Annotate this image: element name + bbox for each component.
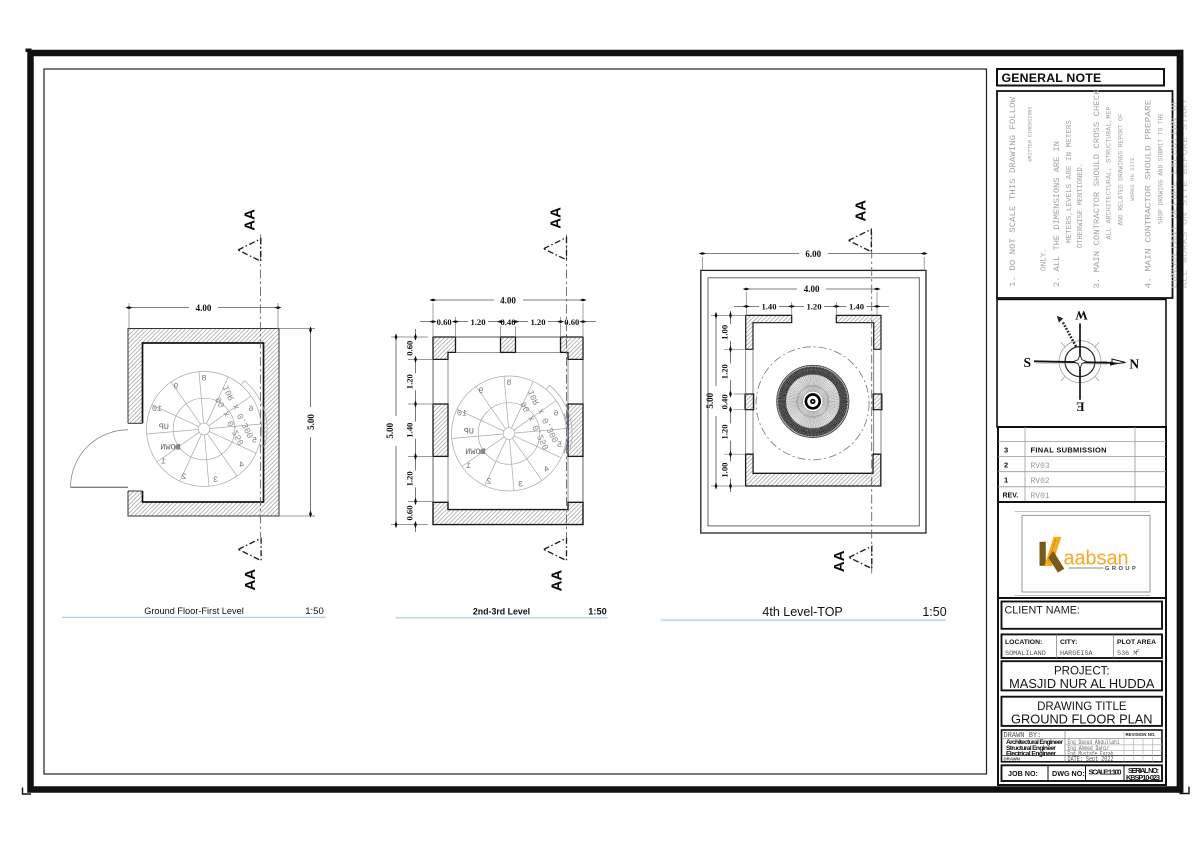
svg-text:W: W (1075, 308, 1088, 322)
svg-text:1:50: 1:50 (305, 606, 324, 617)
svg-text:0.60: 0.60 (404, 341, 414, 356)
svg-text:CITY:: CITY: (1060, 639, 1077, 646)
svg-text:KBSP10-023: KBSP10-023 (1126, 773, 1160, 782)
svg-text:1: 1 (1004, 476, 1008, 485)
svg-text:N: N (1129, 357, 1139, 372)
svg-text:0.60: 0.60 (437, 317, 452, 327)
svg-text:1.40: 1.40 (761, 301, 776, 311)
svg-text:5.00: 5.00 (385, 422, 395, 438)
svg-text:AA: AA (852, 200, 869, 222)
svg-text:1.20: 1.20 (470, 317, 485, 327)
svg-text:RV01: RV01 (1031, 492, 1050, 501)
svg-text:3. MAIN CONTRACTOR SHOULD CRO: 3. MAIN CONTRACTOR SHOULD CROSS CHECK (1093, 89, 1102, 288)
svg-text:HARGEISA: HARGEISA (1060, 650, 1094, 658)
svg-text:Ground Floor-First Level: Ground Floor-First Level (144, 606, 244, 616)
svg-text:1.20: 1.20 (404, 471, 414, 486)
svg-text:1.20: 1.20 (719, 424, 729, 439)
svg-text:1:50: 1:50 (588, 607, 606, 617)
svg-text:4. MAIN CONTRACTOR SHOULD PRE: 4. MAIN CONTRACTOR SHOULD PREPARE (1144, 99, 1153, 288)
svg-text:SOMALILAND: SOMALILAND (1005, 650, 1046, 658)
svg-text:RV02: RV02 (1031, 477, 1050, 486)
svg-text:2: 2 (1004, 461, 1008, 470)
svg-text:6.00: 6.00 (805, 249, 821, 259)
svg-text:1.20: 1.20 (806, 301, 821, 311)
svg-text:REV.: REV. (1003, 493, 1019, 500)
svg-text:RV03: RV03 (1031, 462, 1050, 471)
svg-text:AA: AA (549, 570, 566, 592)
svg-text:536 M: 536 M (1117, 650, 1137, 658)
svg-text:PLOT AREA: PLOT AREA (1117, 639, 1156, 646)
svg-text:1.00: 1.00 (719, 463, 729, 478)
svg-text:1.40: 1.40 (404, 423, 414, 438)
svg-text:GROUP: GROUP (1105, 566, 1138, 572)
svg-text:3: 3 (1004, 446, 1008, 455)
svg-text:OTHERWISE MENTIONED.: OTHERWISE MENTIONED. (1077, 163, 1085, 248)
svg-text:AA: AA (242, 209, 259, 231)
svg-text:4th Level-TOP: 4th Level-TOP (762, 605, 842, 619)
svg-text:GROUND FLOOR PLAN: GROUND FLOOR PLAN (1011, 711, 1153, 726)
svg-text:AA: AA (831, 550, 848, 572)
svg-text:WRITTEN DIMENSIONS: WRITTEN DIMENSIONS (1027, 107, 1033, 162)
svg-text:E: E (1076, 400, 1084, 414)
svg-text:1.20: 1.20 (530, 317, 545, 327)
svg-text:1.40: 1.40 (849, 301, 864, 311)
svg-text:FINAL SUBMISSION: FINAL SUBMISSION (1031, 446, 1107, 455)
svg-text:4.00: 4.00 (500, 295, 516, 305)
svg-text:SCALE:1:100: SCALE:1:100 (1089, 767, 1122, 776)
svg-text:2nd-3rd Level: 2nd-3rd Level (473, 607, 530, 617)
svg-text:2. ALL THE DIMENSIONS ARE IN: 2. ALL THE DIMENSIONS ARE IN (1053, 141, 1062, 287)
svg-text:1.00: 1.00 (719, 325, 729, 340)
svg-text:CLIENT NAME:: CLIENT NAME: (1005, 605, 1080, 617)
svg-text:AA: AA (547, 207, 564, 229)
svg-text:5.00: 5.00 (306, 414, 316, 430)
svg-text:METERS,LEVELS ARE IN METERS: METERS,LEVELS ARE IN METERS (1066, 120, 1074, 243)
svg-text:WORKS ON SITE.: WORKS ON SITE. (1129, 154, 1136, 201)
svg-text:0.40: 0.40 (719, 394, 729, 409)
svg-text:REVISION NO.: REVISION NO. (1126, 732, 1156, 737)
svg-text:1.20: 1.20 (719, 364, 729, 379)
svg-text:MASJID NUR AL HUDDA: MASJID NUR AL HUDDA (1009, 676, 1155, 691)
svg-text:DATE: Sept 2022: DATE: Sept 2022 (1068, 756, 1114, 764)
svg-text:2: 2 (1137, 648, 1140, 654)
svg-text:5.00: 5.00 (705, 392, 715, 408)
svg-text:AA: AA (242, 569, 259, 591)
svg-text:0.60: 0.60 (404, 505, 414, 520)
svg-text:LOCATION:: LOCATION: (1005, 639, 1042, 646)
svg-text:JOB NO:: JOB NO: (1008, 769, 1038, 778)
svg-text:DRAWN: DRAWN (1004, 757, 1021, 762)
svg-text:GENERAL NOTE: GENERAL NOTE (1002, 71, 1102, 85)
svg-text:AND RELATED DRAWINGS REPORT OF: AND RELATED DRAWINGS REPORT OF (1118, 113, 1125, 225)
svg-text:1.20: 1.20 (404, 374, 414, 389)
svg-text:1. DO NOT SCALE THIS DRAWING: 1. DO NOT SCALE THIS DRAWING FOLLOW (1009, 97, 1018, 287)
svg-text:SHOP DRAWING AND SUBMIT TO THE: SHOP DRAWING AND SUBMIT TO THE (1157, 113, 1164, 224)
svg-text:S: S (1023, 355, 1031, 370)
svg-text:1:50: 1:50 (922, 605, 946, 619)
svg-text:ONLY.: ONLY. (1041, 248, 1049, 271)
svg-text:DWG NO:: DWG NO: (1052, 769, 1085, 778)
svg-text:4.00: 4.00 (196, 303, 212, 313)
svg-text:4.00: 4.00 (804, 284, 820, 294)
svg-text:ALL ARCHITECTURAL, STRUCTURAL: ALL ARCHITECTURAL, STRUCTURAL,MEP (1106, 106, 1113, 239)
svg-text:0.40: 0.40 (500, 317, 515, 327)
